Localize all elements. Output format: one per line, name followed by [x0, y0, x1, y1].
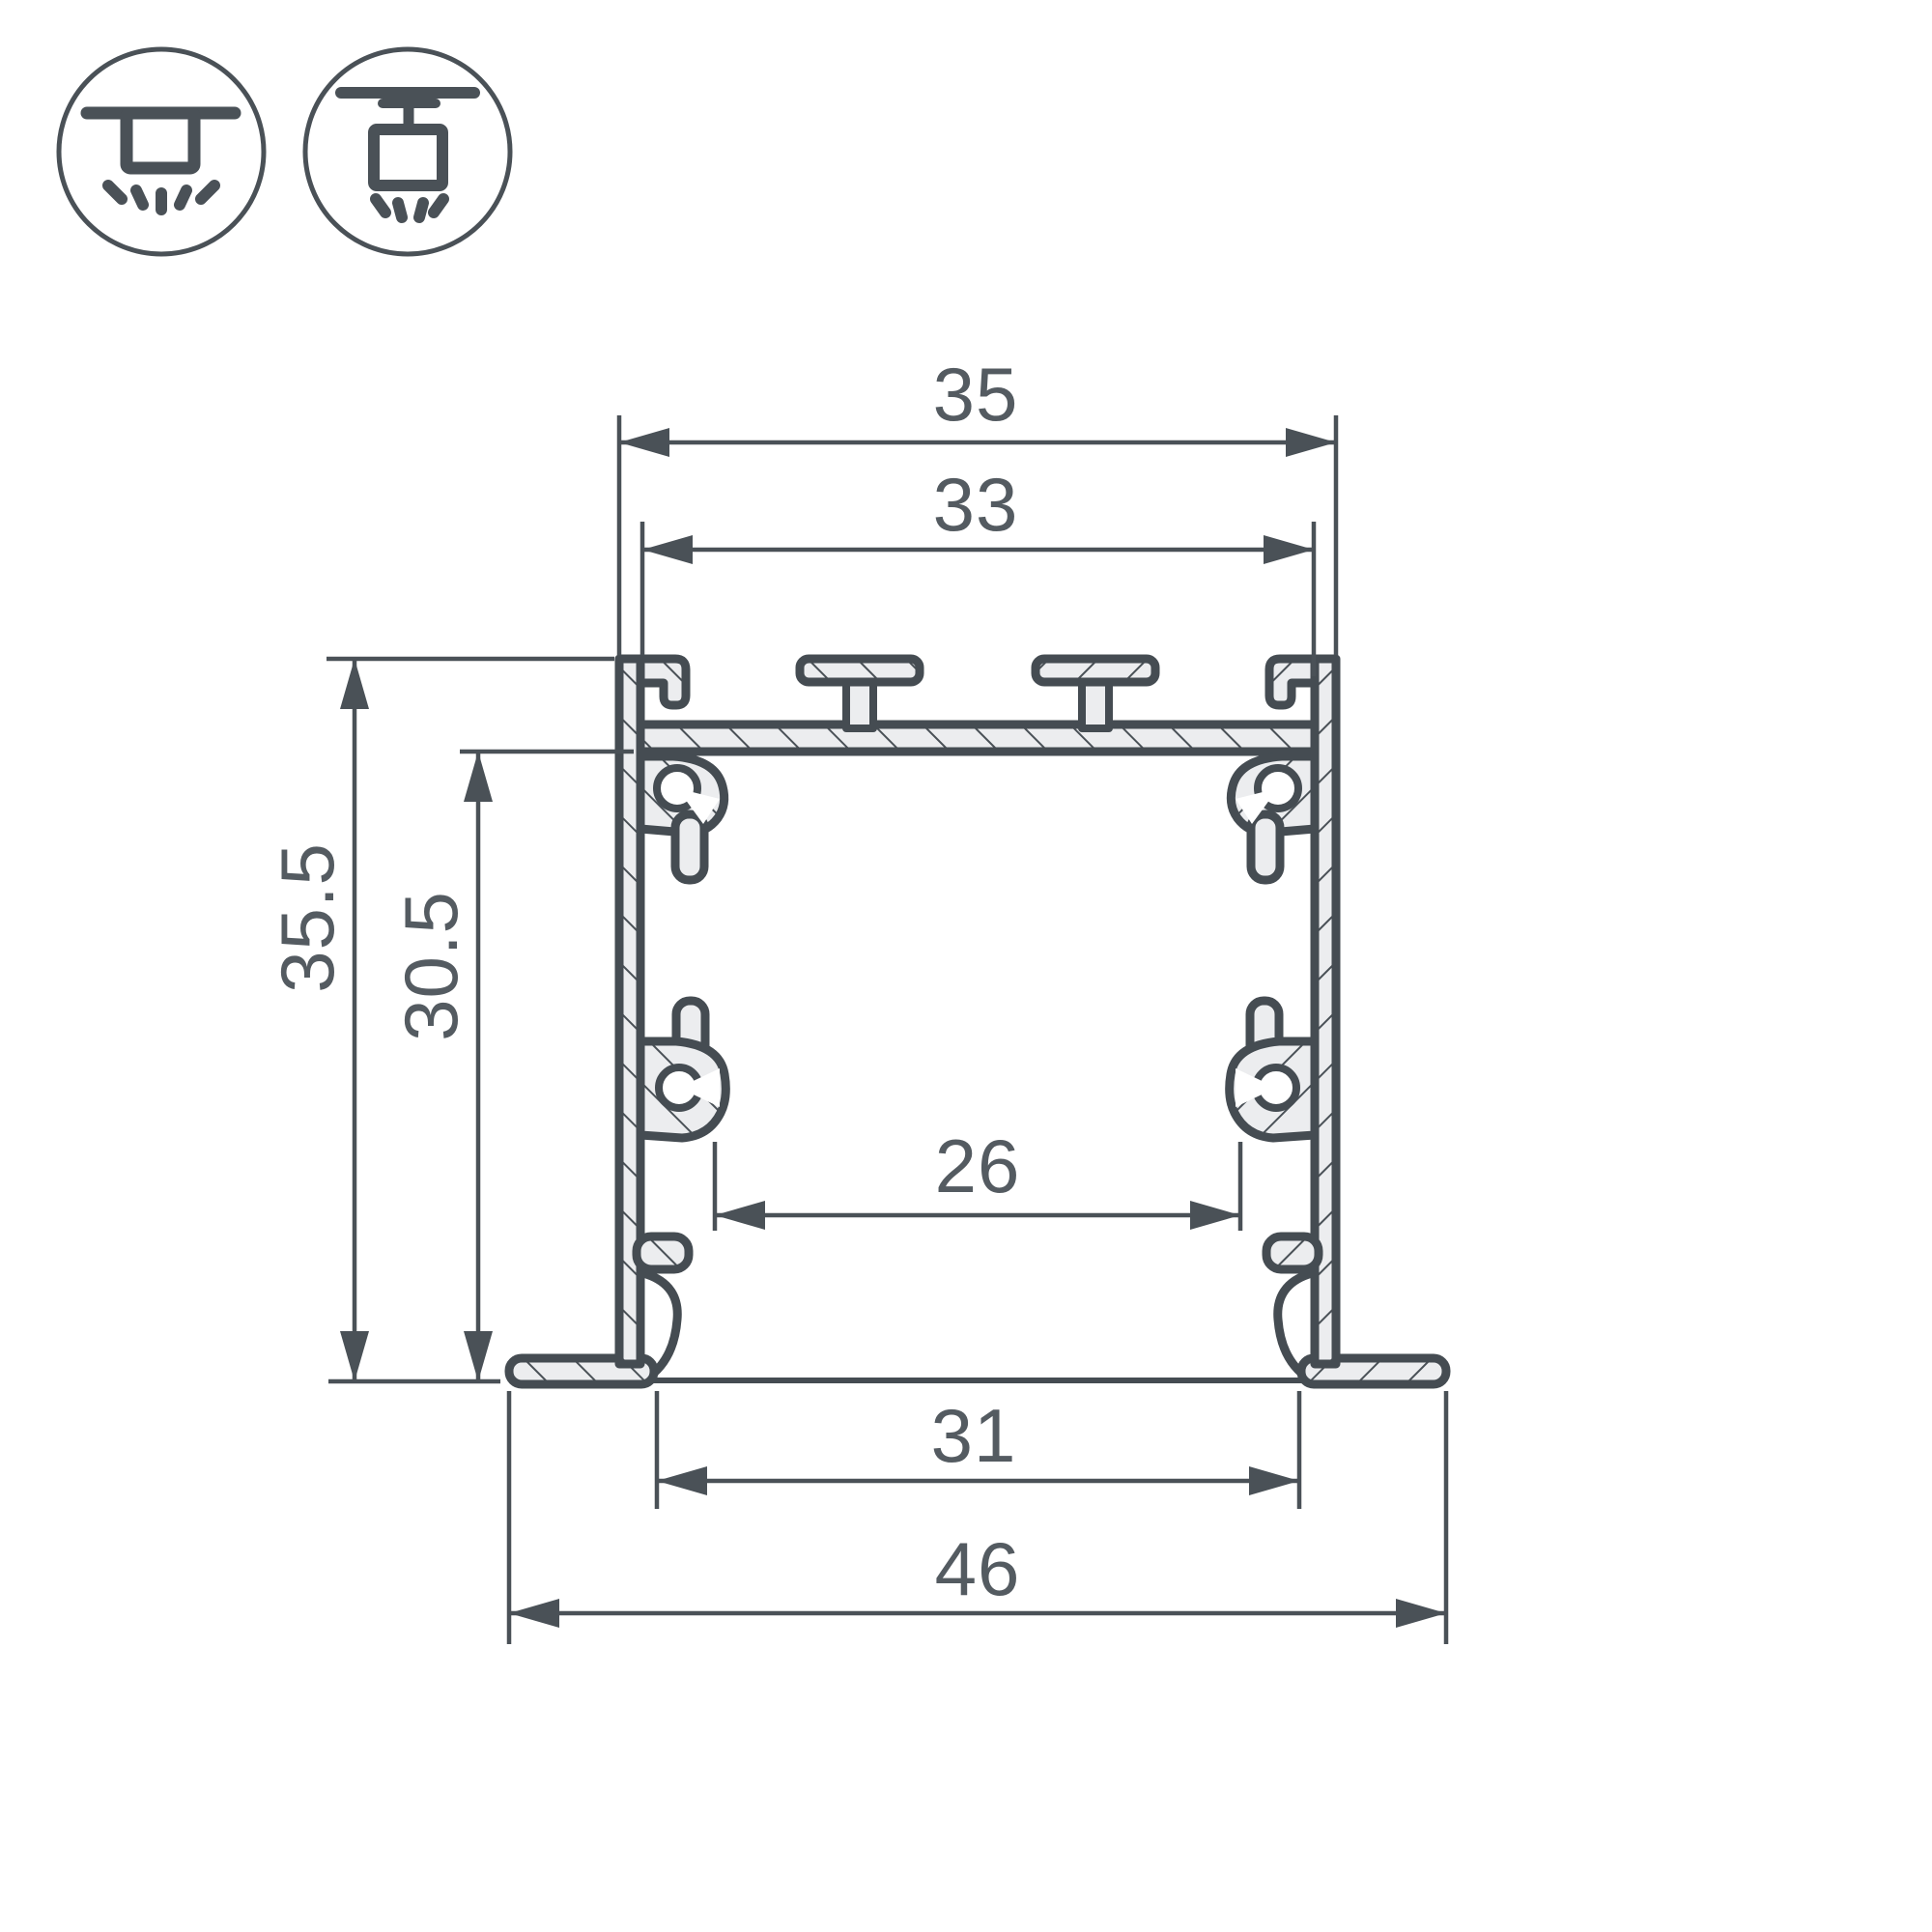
recessed-mount-icon	[59, 49, 264, 254]
profile-box	[374, 129, 442, 185]
profile-right-half	[1036, 659, 1446, 1384]
profile-top-plate	[640, 724, 1315, 752]
t-rib-cap	[800, 659, 920, 682]
dim-label-inner-top-width: 33	[933, 462, 1019, 547]
profile-box	[127, 113, 194, 168]
technical-drawing-page: 35 33 35.5 30.5 26 31 46	[0, 0, 1932, 1932]
lower-bump	[637, 1236, 689, 1269]
dim-label-total-height: 35.5	[265, 842, 350, 993]
top-corner-hook	[640, 659, 686, 705]
light-rays	[376, 199, 443, 217]
dim-label-inner-height: 30.5	[388, 891, 473, 1041]
upper-boss-finger	[675, 814, 704, 880]
profile-cross-section-drawing: 35 33 35.5 30.5 26 31 46	[0, 0, 1932, 1932]
profile-left-half	[509, 659, 920, 1384]
light-rays	[108, 185, 214, 210]
dim-label-inner-width: 26	[935, 1123, 1021, 1208]
surface-mount-icon	[305, 49, 510, 254]
dim-label-cutout-width: 31	[931, 1393, 1017, 1478]
dim-label-flange-width: 46	[935, 1526, 1021, 1611]
dim-label-outer-width: 35	[933, 352, 1019, 437]
